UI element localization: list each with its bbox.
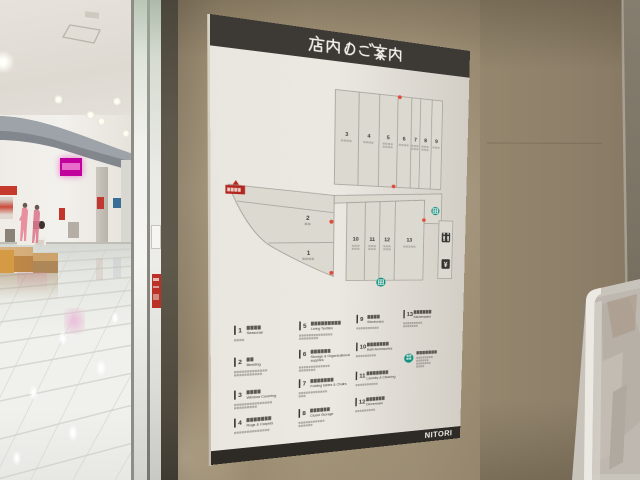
- svg-text:11: 11: [369, 237, 375, 242]
- svg-text:13: 13: [406, 238, 412, 243]
- svg-text:12: 12: [359, 398, 366, 405]
- svg-text:6: 6: [403, 137, 406, 143]
- svg-text:5: 5: [303, 322, 307, 329]
- svg-text:supplies: supplies: [311, 358, 324, 363]
- svg-text:7: 7: [303, 380, 307, 387]
- svg-text:9: 9: [360, 316, 363, 323]
- svg-text:8: 8: [424, 138, 427, 144]
- svg-text:Electronics: Electronics: [367, 319, 383, 323]
- svg-text:12: 12: [384, 237, 390, 242]
- svg-text:¥: ¥: [444, 261, 449, 269]
- svg-text:Bedding: Bedding: [247, 362, 262, 367]
- svg-text:4: 4: [367, 134, 370, 140]
- svg-text:9: 9: [435, 139, 438, 144]
- svg-text:1: 1: [307, 250, 310, 256]
- svg-text:2: 2: [238, 358, 242, 365]
- svg-text:Kitchenware: Kitchenware: [414, 314, 432, 318]
- svg-text:5: 5: [387, 135, 390, 141]
- svg-text:3: 3: [345, 132, 348, 138]
- svg-text:2: 2: [306, 215, 309, 221]
- svg-text:11: 11: [359, 372, 365, 379]
- svg-text:Living Textiles: Living Textiles: [311, 326, 333, 331]
- svg-text:10: 10: [353, 237, 359, 243]
- svg-text:8: 8: [302, 410, 306, 417]
- svg-text:Seasonal: Seasonal: [247, 330, 263, 335]
- svg-text:6: 6: [303, 351, 307, 358]
- svg-text:3: 3: [238, 391, 242, 398]
- svg-text:1: 1: [238, 327, 242, 334]
- svg-text:7: 7: [414, 138, 417, 144]
- svg-text:10: 10: [360, 343, 367, 350]
- svg-text:13: 13: [407, 311, 413, 318]
